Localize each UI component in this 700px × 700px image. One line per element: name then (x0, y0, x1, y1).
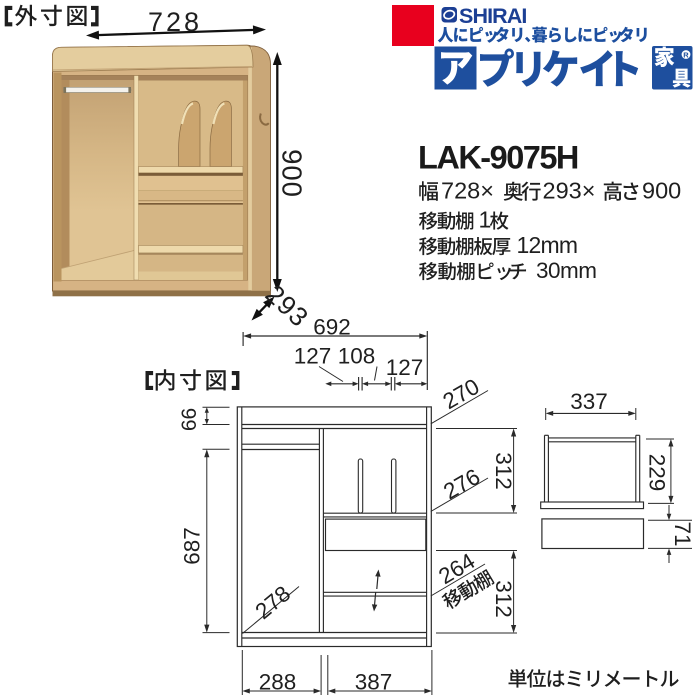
svg-text:SHIRAI: SHIRAI (459, 4, 526, 28)
svg-text:108: 108 (338, 343, 376, 368)
svg-text:900: 900 (277, 149, 308, 198)
svg-text:127: 127 (386, 355, 424, 380)
svg-text:387: 387 (355, 670, 393, 695)
svg-text:293×: 293× (543, 178, 596, 204)
svg-text:1: 1 (479, 207, 492, 233)
svg-text:900: 900 (642, 178, 681, 204)
svg-text:66: 66 (178, 408, 201, 431)
svg-text:312: 312 (491, 452, 516, 490)
svg-text:728: 728 (148, 7, 202, 37)
svg-text:270: 270 (439, 374, 484, 414)
svg-text:229: 229 (644, 454, 669, 492)
svg-text:337: 337 (570, 389, 608, 414)
svg-text:276: 276 (439, 464, 484, 504)
svg-text:12mm: 12mm (517, 232, 578, 258)
svg-text:R: R (683, 50, 689, 59)
svg-text:127: 127 (294, 343, 332, 368)
svg-text:71: 71 (670, 521, 695, 546)
svg-text:30mm: 30mm (536, 258, 597, 283)
svg-text:687: 687 (180, 527, 205, 565)
svg-text:LAK-9075H: LAK-9075H (418, 140, 578, 176)
svg-text:278: 278 (250, 581, 295, 624)
svg-text:288: 288 (259, 670, 297, 695)
svg-text:728×: 728× (441, 178, 494, 204)
svg-text:692: 692 (313, 315, 351, 340)
svg-text:312: 312 (491, 580, 516, 618)
